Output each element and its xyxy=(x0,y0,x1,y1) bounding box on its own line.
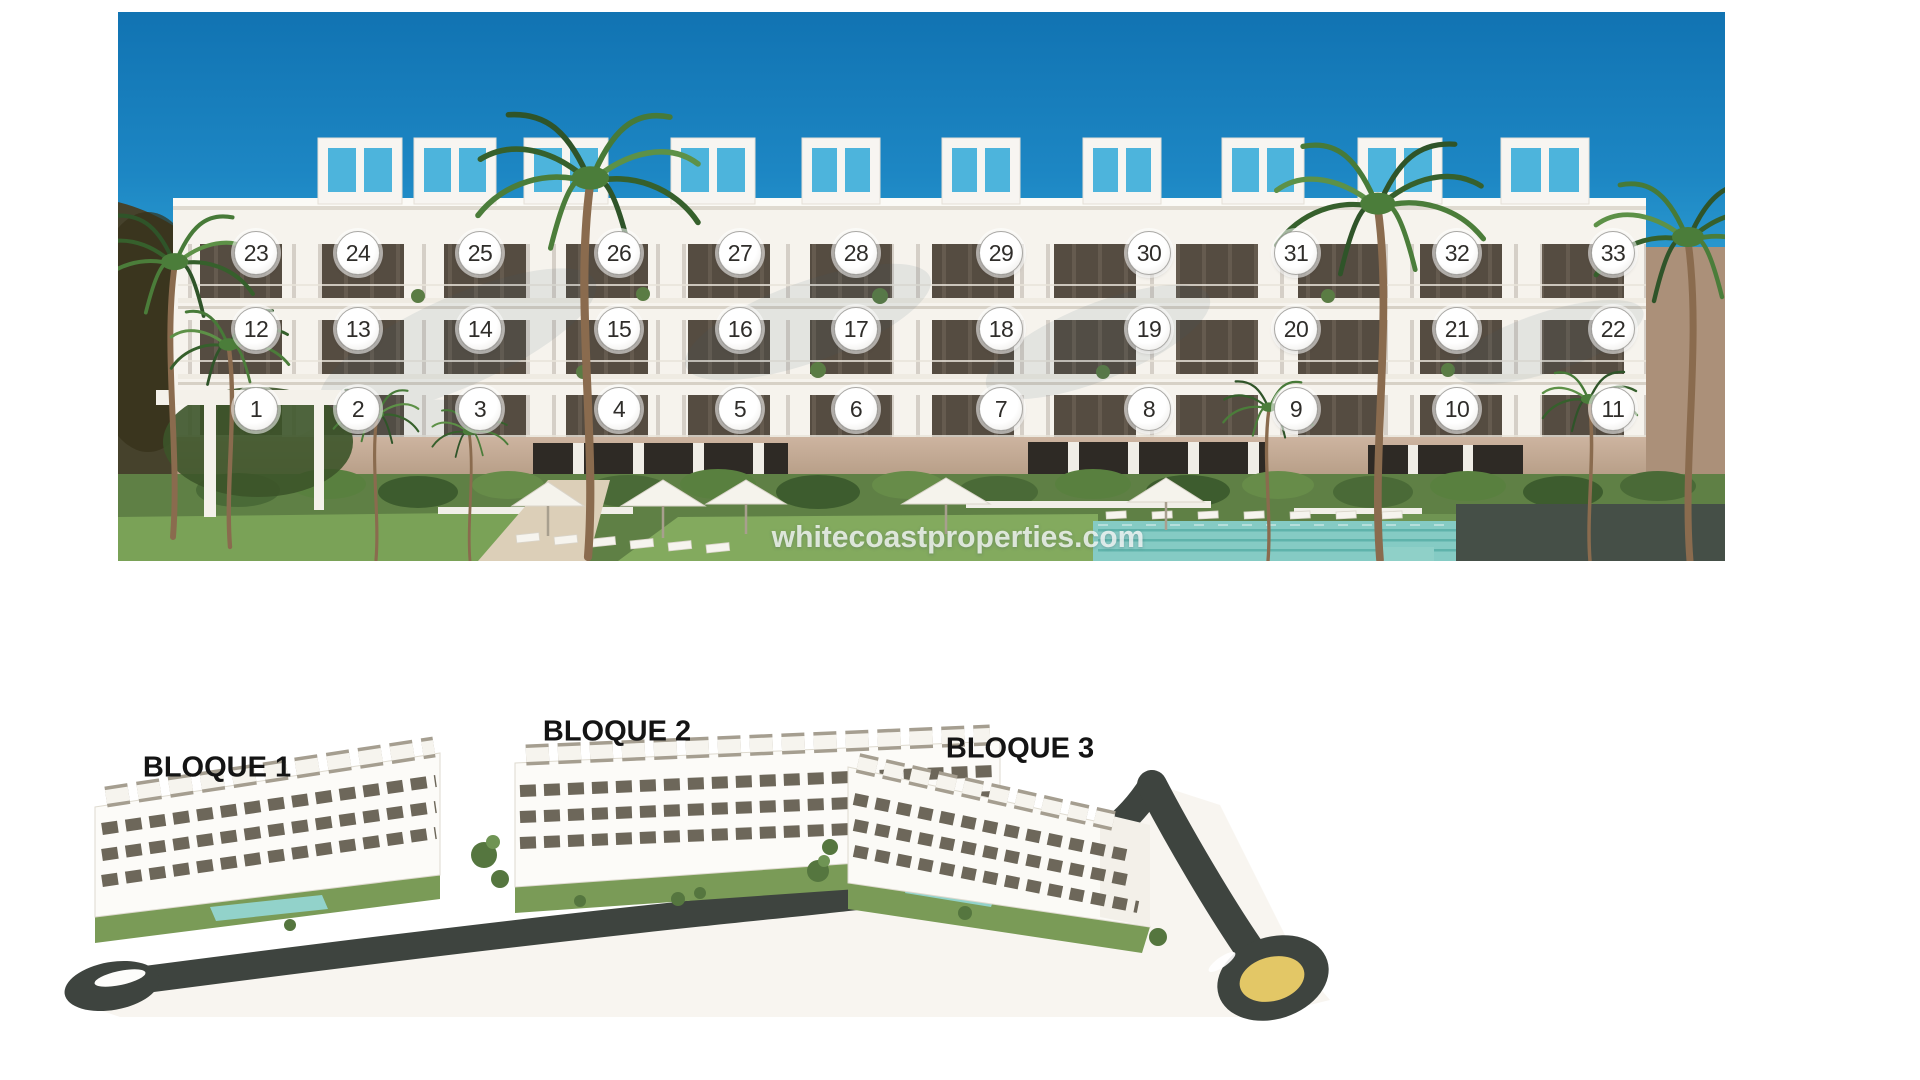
unit-badge-27: 27 xyxy=(718,231,762,275)
unit-badge-11: 11 xyxy=(1591,387,1635,431)
unit-badge-26: 26 xyxy=(597,231,641,275)
unit-badge-7: 7 xyxy=(979,387,1023,431)
unit-badge-19: 19 xyxy=(1127,307,1171,351)
unit-badge-12: 12 xyxy=(234,307,278,351)
unit-badges-layer: 2324252627282930313233121314151617181920… xyxy=(118,12,1725,561)
aerial-site-render: BLOQUE 1 BLOQUE 2 BLOQUE 3 xyxy=(60,695,1480,1025)
unit-badge-33: 33 xyxy=(1591,231,1635,275)
unit-badge-1: 1 xyxy=(234,387,278,431)
unit-badge-9: 9 xyxy=(1274,387,1318,431)
unit-badge-8: 8 xyxy=(1127,387,1171,431)
unit-badge-17: 17 xyxy=(834,307,878,351)
unit-badge-15: 15 xyxy=(597,307,641,351)
unit-badge-32: 32 xyxy=(1435,231,1479,275)
unit-badge-10: 10 xyxy=(1435,387,1479,431)
building-facade-render: 2324252627282930313233121314151617181920… xyxy=(118,12,1725,561)
unit-badge-22: 22 xyxy=(1591,307,1635,351)
unit-badge-21: 21 xyxy=(1435,307,1479,351)
unit-badge-14: 14 xyxy=(458,307,502,351)
unit-badge-29: 29 xyxy=(979,231,1023,275)
watermark: whitecoastproperties.com xyxy=(772,519,1145,555)
aerial-scene xyxy=(60,695,1480,1025)
unit-badge-4: 4 xyxy=(597,387,641,431)
unit-badge-30: 30 xyxy=(1127,231,1171,275)
page: 2324252627282930313233121314151617181920… xyxy=(0,0,1920,1080)
unit-badge-5: 5 xyxy=(718,387,762,431)
unit-badge-3: 3 xyxy=(458,387,502,431)
block-label-bloque-3: BLOQUE 3 xyxy=(946,733,1094,766)
block-label-bloque-1: BLOQUE 1 xyxy=(143,752,291,785)
unit-badge-13: 13 xyxy=(336,307,380,351)
unit-badge-16: 16 xyxy=(718,307,762,351)
unit-badge-2: 2 xyxy=(336,387,380,431)
unit-badge-28: 28 xyxy=(834,231,878,275)
unit-badge-24: 24 xyxy=(336,231,380,275)
unit-badge-6: 6 xyxy=(834,387,878,431)
unit-badge-20: 20 xyxy=(1274,307,1318,351)
unit-badge-25: 25 xyxy=(458,231,502,275)
block-label-bloque-2: BLOQUE 2 xyxy=(543,716,691,749)
unit-badge-18: 18 xyxy=(979,307,1023,351)
unit-badge-31: 31 xyxy=(1274,231,1318,275)
unit-badge-23: 23 xyxy=(234,231,278,275)
